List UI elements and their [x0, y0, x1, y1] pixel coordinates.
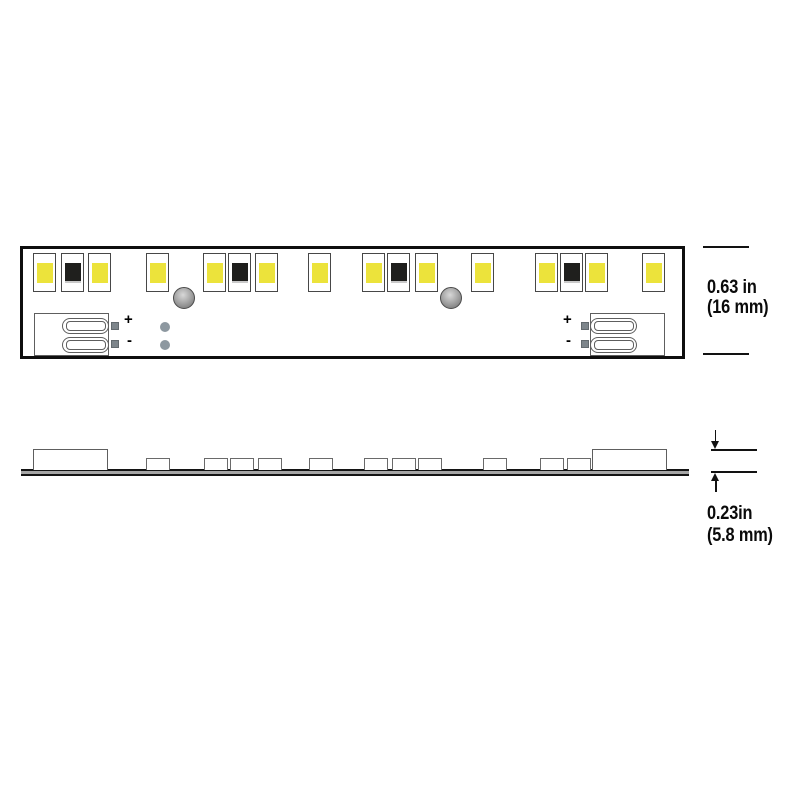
thickness-arrow-down-icon [711, 441, 719, 449]
mounting-hole [173, 287, 195, 309]
solder-pad-minus-left [111, 340, 119, 348]
side-component-bump [146, 458, 170, 470]
side-connector-box [592, 449, 667, 470]
led-chip-dark [65, 263, 81, 283]
side-component-bump [364, 458, 388, 470]
height-dim-bottom-tick [703, 353, 749, 355]
plus-label-right: + [563, 313, 572, 327]
led-chip-yellow [37, 263, 53, 283]
height-dim-top-tick [703, 246, 749, 248]
plus-label-left: + [124, 313, 133, 327]
led-module [255, 253, 278, 292]
via-dot [160, 340, 170, 350]
led-strip-dimension-diagram: +-+- 0.63 in (16 mm) 0.23in (5.8 mm) [0, 0, 800, 800]
led-chip-yellow [646, 263, 662, 283]
minus-label-left: - [127, 334, 132, 348]
thickness-dimension-label: 0.23in (5.8 mm) [707, 503, 773, 547]
solder-pad-plus-right [581, 322, 589, 330]
led-module [415, 253, 438, 292]
wire-clamp-bottom-right [590, 337, 637, 353]
led-chip-yellow [419, 263, 435, 283]
led-module [362, 253, 385, 292]
mounting-hole [440, 287, 462, 309]
led-chip-yellow [366, 263, 382, 283]
led-chip-yellow [312, 263, 328, 283]
thickness-dim-top-tick [711, 449, 757, 451]
led-module [560, 253, 583, 292]
led-module [585, 253, 608, 292]
led-chip-yellow [150, 263, 166, 283]
led-chip-yellow [259, 263, 275, 283]
led-chip-yellow [475, 263, 491, 283]
led-chip-dark [391, 263, 407, 283]
led-chip-dark [564, 263, 580, 283]
led-module [203, 253, 226, 292]
minus-label-right: - [566, 334, 571, 348]
led-module [535, 253, 558, 292]
led-module [146, 253, 169, 292]
led-module [471, 253, 494, 292]
led-chip-yellow [589, 263, 605, 283]
height-dimension-label: 0.63 in (16 mm) [707, 278, 768, 318]
led-module [228, 253, 251, 292]
wire-clamp-top-left [62, 318, 109, 334]
side-component-bump [392, 458, 416, 470]
led-module [61, 253, 84, 292]
led-module [308, 253, 331, 292]
height-dimension-mm: (16 mm) [707, 298, 768, 318]
led-module [88, 253, 111, 292]
side-component-bump [204, 458, 228, 470]
thickness-dimension-inches: 0.23in [707, 503, 773, 525]
thickness-dimension-mm: (5.8 mm) [707, 525, 773, 547]
side-component-bump [418, 458, 442, 470]
led-chip-yellow [539, 263, 555, 283]
led-chip-dark [232, 263, 248, 283]
solder-pad-plus-left [111, 322, 119, 330]
led-module [387, 253, 410, 292]
height-dimension-inches: 0.63 in [707, 278, 768, 298]
side-component-bump [483, 458, 507, 470]
led-module [642, 253, 665, 292]
wire-clamp-top-right [590, 318, 637, 334]
side-component-bump [540, 458, 564, 470]
led-chip-yellow [207, 263, 223, 283]
side-component-bump [309, 458, 333, 470]
pcb-side-profile-bar [21, 469, 689, 476]
side-component-bump [230, 458, 254, 470]
side-component-bump [567, 458, 591, 470]
side-connector-box [33, 449, 108, 470]
wire-clamp-bottom-left [62, 337, 109, 353]
led-module [33, 253, 56, 292]
thickness-arrow-up-line [715, 481, 717, 492]
via-dot [160, 322, 170, 332]
solder-pad-minus-right [581, 340, 589, 348]
side-component-bump [258, 458, 282, 470]
led-chip-yellow [92, 263, 108, 283]
thickness-arrow-down-line [715, 430, 717, 441]
